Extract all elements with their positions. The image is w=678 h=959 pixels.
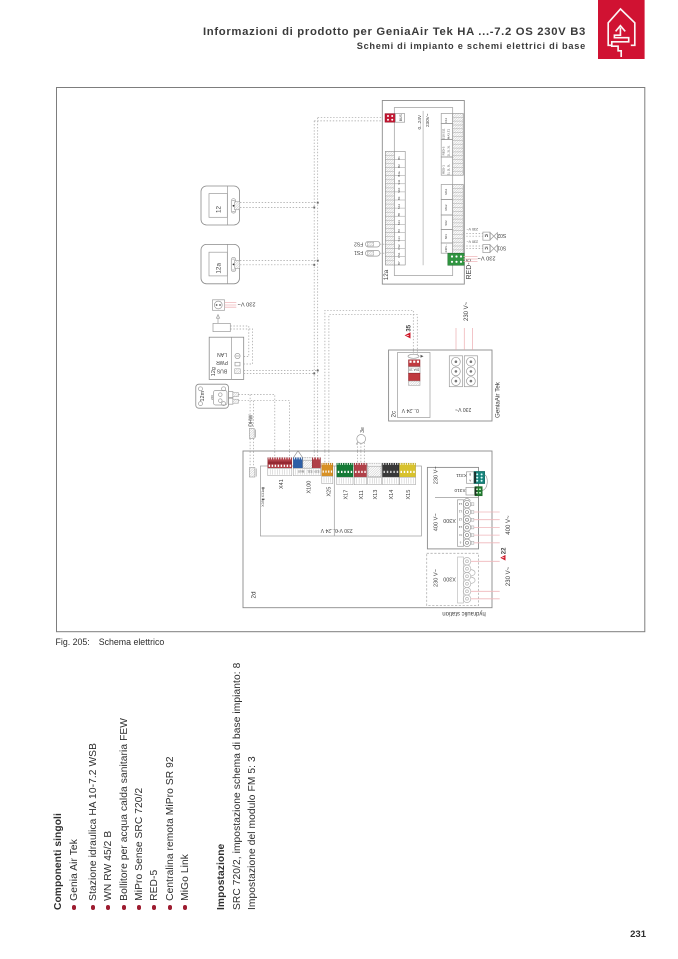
svg-text:0...24V: 0...24V bbox=[417, 114, 422, 129]
svg-text:S01: S01 bbox=[444, 234, 448, 240]
svg-text:230V~: 230V~ bbox=[444, 244, 448, 253]
svg-text:S01: S01 bbox=[497, 245, 506, 251]
svg-text:S14: S14 bbox=[397, 236, 401, 242]
svg-text:FS1: FS1 bbox=[354, 249, 363, 255]
svg-text:B2: B2 bbox=[397, 164, 401, 168]
svg-text:BUS: BUS bbox=[399, 113, 403, 121]
svg-text:B5: B5 bbox=[397, 212, 401, 216]
svg-text:230 V~: 230 V~ bbox=[506, 566, 512, 586]
svg-text:35: 35 bbox=[406, 324, 412, 331]
svg-text:N: N bbox=[459, 533, 461, 537]
svg-text:B7: B7 bbox=[397, 261, 401, 265]
svg-text:B4a: B4a bbox=[397, 171, 401, 177]
svg-text:LAN: LAN bbox=[217, 351, 227, 357]
svg-text:⏚: ⏚ bbox=[459, 541, 462, 546]
svg-text:FS2: FS2 bbox=[397, 244, 401, 250]
svg-text:hydraulic station: hydraulic station bbox=[442, 610, 485, 616]
svg-text:MA3 Z1: MA3 Z1 bbox=[447, 129, 451, 140]
svg-text:X310: X310 bbox=[454, 487, 466, 493]
svg-text:230 V~: 230 V~ bbox=[337, 527, 353, 533]
svg-text:X13: X13 bbox=[373, 490, 379, 500]
svg-text:S10: S10 bbox=[397, 187, 401, 193]
svg-text:GeniaAir Tek: GeniaAir Tek bbox=[495, 381, 502, 418]
svg-text:0...24 V: 0...24 V bbox=[401, 407, 419, 413]
svg-text:L1: L1 bbox=[459, 502, 463, 506]
svg-text:3e: 3e bbox=[360, 427, 366, 433]
svg-text:0...24 V: 0...24 V bbox=[320, 527, 338, 533]
svg-text:S12: S12 bbox=[397, 204, 401, 210]
svg-text:B: B bbox=[469, 472, 471, 476]
svg-text:230 V~: 230 V~ bbox=[466, 227, 478, 231]
svg-text:DIA 10: DIA 10 bbox=[409, 367, 419, 371]
svg-text:12a: 12a bbox=[383, 269, 390, 280]
svg-text:A: A bbox=[469, 478, 471, 482]
svg-text:230 V~: 230 V~ bbox=[466, 240, 478, 244]
svg-text:1L 2L 3L: 1L 2L 3L bbox=[447, 164, 451, 175]
svg-text:S02: S02 bbox=[497, 232, 506, 238]
svg-text:PWR: PWR bbox=[216, 359, 228, 365]
svg-text:MA1: MA1 bbox=[444, 188, 448, 194]
svg-text:X100: X100 bbox=[307, 481, 313, 494]
svg-text:M: M bbox=[484, 246, 488, 251]
svg-text:S02: S02 bbox=[444, 220, 448, 226]
svg-text:X14: X14 bbox=[389, 490, 395, 500]
svg-text:BUS: BUS bbox=[298, 469, 304, 473]
svg-text:DHW: DHW bbox=[249, 414, 255, 426]
svg-text:L1: L1 bbox=[459, 510, 463, 514]
svg-text:X11: X11 bbox=[359, 490, 365, 499]
svg-text:S21: S21 bbox=[307, 469, 313, 473]
svg-text:230 V~: 230 V~ bbox=[237, 300, 256, 306]
svg-text:2c: 2c bbox=[390, 411, 397, 418]
svg-text:X25: X25 bbox=[326, 487, 332, 497]
svg-text:FS2: FS2 bbox=[354, 240, 363, 246]
svg-text:X39▮ X31a▮: X39▮ X31a▮ bbox=[261, 487, 265, 507]
svg-text:230 V~: 230 V~ bbox=[464, 301, 470, 321]
svg-text:L3: L3 bbox=[459, 525, 463, 529]
svg-text:230 V~: 230 V~ bbox=[455, 406, 471, 412]
svg-text:400 V~: 400 V~ bbox=[506, 515, 512, 535]
svg-text:B6: B6 bbox=[397, 229, 401, 233]
svg-text:MA2: MA2 bbox=[444, 204, 448, 210]
svg-text:12g: 12g bbox=[211, 367, 217, 376]
svg-text:X41: X41 bbox=[279, 479, 285, 489]
svg-text:X300: X300 bbox=[443, 576, 456, 582]
svg-text:24V: 24V bbox=[210, 395, 214, 400]
svg-text:X12: X12 bbox=[444, 118, 448, 124]
svg-text:230V~: 230V~ bbox=[425, 113, 430, 127]
svg-text:1L 2L 3L: 1L 2L 3L bbox=[447, 145, 451, 156]
svg-text:B3: B3 bbox=[397, 196, 401, 200]
svg-text:X311: X311 bbox=[456, 472, 467, 478]
svg-text:B1: B1 bbox=[397, 156, 401, 160]
svg-text:S11: S11 bbox=[397, 179, 401, 184]
svg-text:X300: X300 bbox=[443, 517, 456, 523]
svg-text:230 V~: 230 V~ bbox=[477, 255, 496, 261]
svg-text:230 V~: 230 V~ bbox=[434, 466, 440, 485]
svg-text:RED-1: RED-1 bbox=[442, 165, 446, 174]
svg-text:RED-3: RED-3 bbox=[442, 146, 446, 155]
svg-text:FS1: FS1 bbox=[397, 252, 401, 258]
svg-text:22: 22 bbox=[501, 547, 507, 554]
svg-text:BUS: BUS bbox=[216, 368, 227, 374]
svg-text:S13: S13 bbox=[397, 220, 401, 226]
svg-text:230 V~: 230 V~ bbox=[434, 568, 440, 587]
svg-text:S20: S20 bbox=[314, 469, 320, 473]
svg-text:12: 12 bbox=[216, 206, 223, 214]
svg-text:2d: 2d bbox=[251, 591, 258, 599]
svg-text:L2: L2 bbox=[459, 517, 463, 521]
svg-text:M: M bbox=[484, 233, 488, 238]
svg-text:X17: X17 bbox=[343, 490, 349, 500]
svg-text:S10 S11: S10 S11 bbox=[442, 128, 446, 139]
svg-text:X15: X15 bbox=[406, 490, 412, 500]
svg-text:12m: 12m bbox=[200, 390, 206, 401]
svg-text:12a: 12a bbox=[216, 263, 223, 274]
svg-text:400 V~: 400 V~ bbox=[434, 513, 440, 532]
